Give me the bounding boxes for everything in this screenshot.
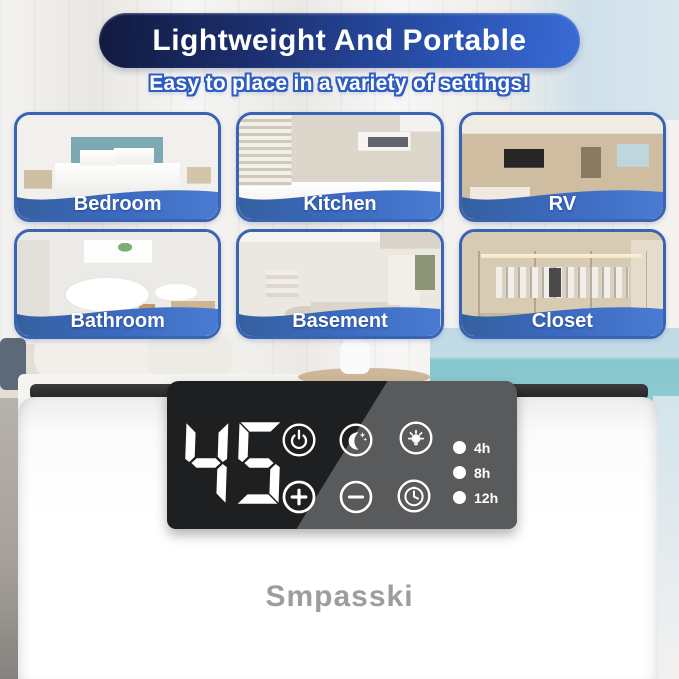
timer-option-12h: 12h bbox=[453, 485, 498, 510]
room-grid: Bedroom Kitchen RV Bathroom Basement bbox=[14, 112, 666, 339]
room-card-bathroom: Bathroom bbox=[14, 229, 221, 339]
timer-options: 4h 8h 12h bbox=[453, 435, 498, 510]
timer-indicator-dot bbox=[453, 441, 466, 454]
brand-logo: Smpasski bbox=[0, 580, 679, 614]
timer-button bbox=[396, 478, 432, 514]
page-subtitle: Easy to place in a variety of settings! bbox=[0, 72, 679, 96]
title-banner: Lightweight And Portable bbox=[99, 13, 580, 68]
seven-segment-digit bbox=[181, 419, 230, 507]
room-label: Closet bbox=[462, 310, 663, 333]
timer-option-8h: 8h bbox=[453, 460, 498, 485]
product-infographic: Lightweight And Portable Easy to place i… bbox=[0, 0, 679, 679]
room-label: Kitchen bbox=[239, 193, 440, 216]
timer-icon bbox=[396, 478, 432, 514]
page-title: Lightweight And Portable bbox=[152, 24, 526, 58]
humidity-display bbox=[181, 419, 283, 507]
power-icon bbox=[281, 422, 317, 458]
sleep-mode-button bbox=[338, 422, 374, 458]
plus-icon bbox=[281, 479, 317, 515]
room-card-rv: RV bbox=[459, 112, 666, 222]
room-card-basement: Basement bbox=[236, 229, 443, 339]
room-card-kitchen: Kitchen bbox=[236, 112, 443, 222]
light-button bbox=[398, 420, 434, 456]
room-label: Bathroom bbox=[17, 310, 218, 333]
sleep-mode-icon bbox=[338, 422, 374, 458]
minus-icon bbox=[338, 479, 374, 515]
room-label: Bedroom bbox=[17, 193, 218, 216]
timer-option-4h: 4h bbox=[453, 435, 498, 460]
power-button bbox=[281, 422, 317, 458]
seven-segment-digit bbox=[234, 419, 283, 507]
room-label: RV bbox=[462, 193, 663, 216]
room-card-bedroom: Bedroom bbox=[14, 112, 221, 222]
control-panel: 4h 8h 12h bbox=[167, 381, 517, 529]
timer-indicator-dot bbox=[453, 491, 466, 504]
room-card-closet: Closet bbox=[459, 229, 666, 339]
light-icon bbox=[398, 420, 434, 456]
decrease-button bbox=[338, 479, 374, 515]
room-label: Basement bbox=[239, 310, 440, 333]
timer-indicator-dot bbox=[453, 466, 466, 479]
increase-button bbox=[281, 479, 317, 515]
